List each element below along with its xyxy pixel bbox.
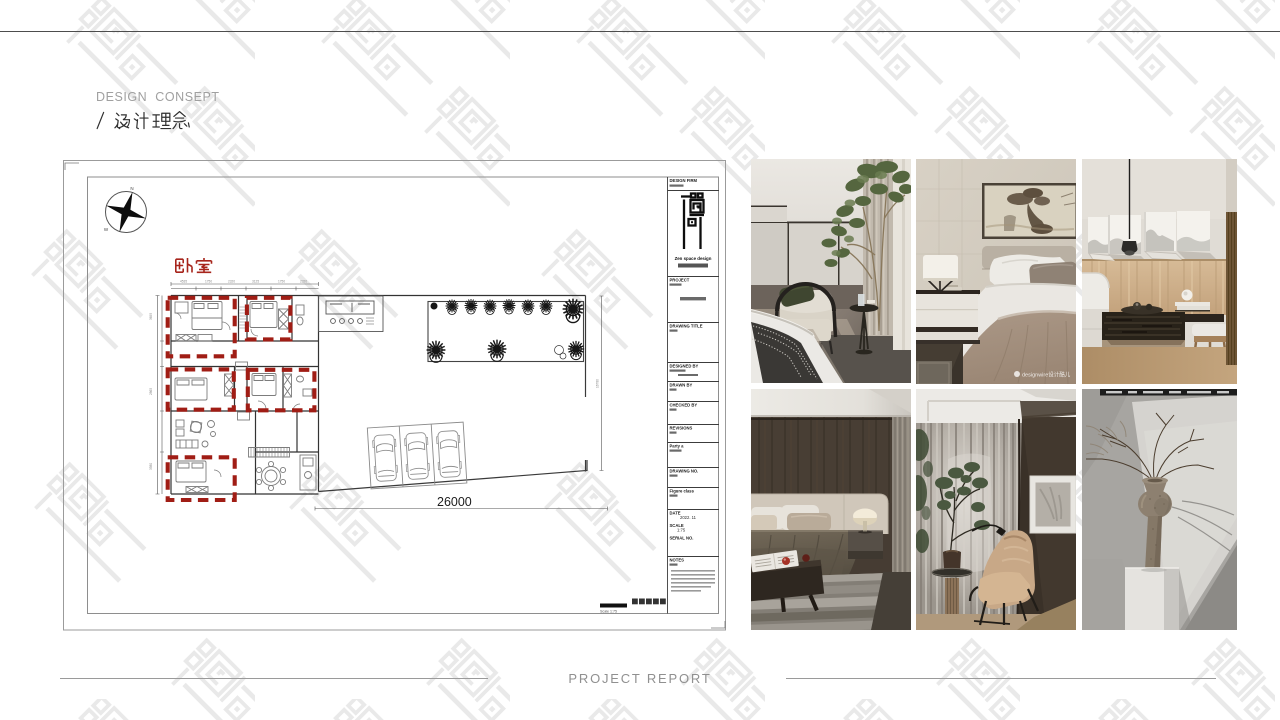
svg-text:DRAWING NO.: DRAWING NO. (670, 469, 699, 474)
svg-text:PROJECT: PROJECT (670, 278, 690, 283)
svg-text:Scale 1:75: Scale 1:75 (600, 610, 617, 614)
svg-text:4535: 4535 (180, 280, 187, 284)
svg-text:REVISIONS: REVISIONS (670, 426, 693, 431)
svg-text:DESIGNED BY: DESIGNED BY (670, 364, 699, 369)
svg-text:3580: 3580 (149, 463, 153, 470)
svg-text:3125: 3125 (252, 280, 259, 284)
svg-text:1750: 1750 (278, 280, 285, 284)
svg-text:N: N (130, 186, 133, 191)
svg-text:2865: 2865 (149, 388, 153, 395)
svg-text:2022. 11: 2022. 11 (680, 515, 697, 520)
svg-text:Party a: Party a (670, 444, 685, 449)
svg-text:26000: 26000 (437, 495, 472, 509)
svg-text:SERIAL NO.: SERIAL NO. (670, 536, 694, 541)
svg-text:designwire设计酷儿: designwire设计酷儿 (1022, 371, 1071, 379)
svg-text:1750: 1750 (205, 280, 212, 284)
svg-text:3695: 3695 (149, 313, 153, 320)
svg-text:W: W (104, 227, 109, 232)
svg-text:NOTES: NOTES (670, 558, 685, 563)
svg-text:Figure class: Figure class (670, 489, 695, 494)
svg-text:DRAWN BY: DRAWN BY (670, 383, 693, 388)
svg-text:DRAWING TITLE: DRAWING TITLE (670, 324, 703, 329)
svg-text:DESIGN FIRM: DESIGN FIRM (670, 178, 698, 183)
svg-text:Zen space design: Zen space design (675, 256, 712, 261)
svg-text:1:75: 1:75 (677, 528, 686, 533)
svg-text:2320: 2320 (300, 280, 307, 284)
svg-text:CHECKED BY: CHECKED BY (670, 403, 698, 408)
svg-text:2320: 2320 (228, 280, 235, 284)
svg-text:16780: 16780 (596, 379, 600, 388)
